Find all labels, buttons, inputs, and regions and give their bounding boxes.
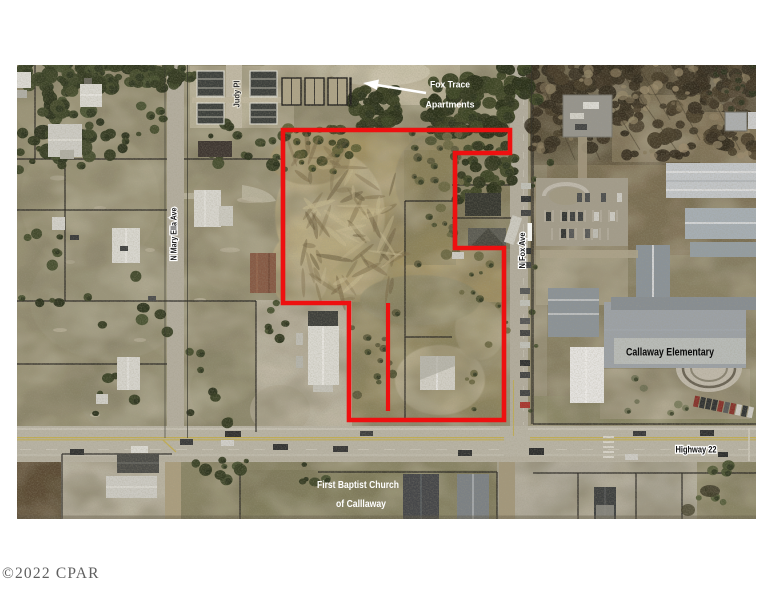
svg-text:N Fox Ave: N Fox Ave (517, 232, 527, 268)
svg-text:N Mary Ella Ave: N Mary Ella Ave (170, 207, 179, 260)
svg-text:Fox Trace: Fox Trace (430, 80, 470, 91)
svg-text:Callaway Elementary: Callaway Elementary (626, 347, 715, 359)
svg-text:©2022 CPAR: ©2022 CPAR (2, 565, 100, 582)
svg-text:First Baptist Church: First Baptist Church (317, 479, 399, 491)
svg-text:of Calllaway: of Calllaway (336, 498, 386, 510)
svg-text:Judy Pl: Judy Pl (233, 81, 242, 108)
svg-text:Highway 22: Highway 22 (676, 445, 717, 455)
svg-text:Apartments: Apartments (426, 100, 475, 111)
